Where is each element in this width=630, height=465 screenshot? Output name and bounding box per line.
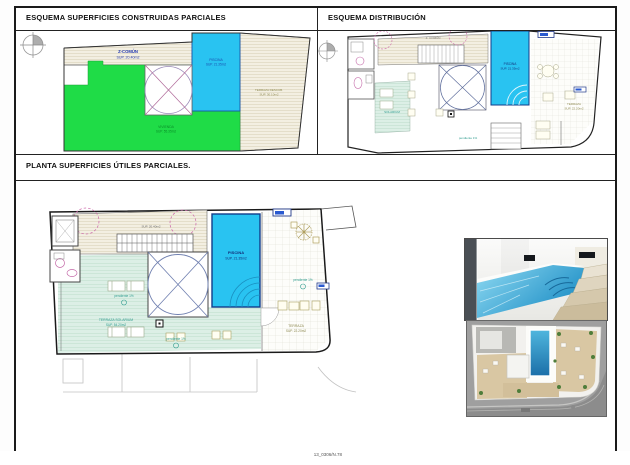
svg-text:Z-COMÚN: Z-COMÚN (118, 49, 138, 54)
svg-text:VIVIENDA: VIVIENDA (158, 125, 175, 129)
zone-piscina-pool (192, 33, 240, 111)
svg-text:Z. COMÚN: Z. COMÚN (426, 35, 441, 40)
dome-skylight (148, 252, 208, 317)
svg-text:SOLARIUM: SOLARIUM (384, 110, 400, 114)
svg-text:TERRAZA DESCUB.: TERRAZA DESCUB. (255, 88, 283, 92)
photo-aerial-render-image (467, 321, 606, 416)
panel-superficies-construidas: ESQUEMA SUPERFICIES CONSTRUIDAS PARCIALE… (16, 8, 318, 154)
plan-distribucion-drawing: Z. COMÚN PISCINA SUP. 21.35m2 SOLARIUM p… (318, 31, 615, 157)
solarium-deck (375, 81, 410, 133)
dome-skylight (145, 65, 192, 115)
photo-pool-render (464, 238, 608, 321)
svg-text:SUP. 22.20m2: SUP. 22.20m2 (286, 329, 307, 333)
terrace-table-set (278, 301, 320, 310)
stairs (117, 234, 193, 252)
black-marker (448, 111, 454, 117)
plan-construidas-drawing: Z-COMÚN SUP. 20.40m2 PISCINA SUP. 21.35m… (16, 31, 317, 157)
svg-text:SUP. 54.20m2: SUP. 54.20m2 (106, 323, 127, 327)
svg-text:PISCINA: PISCINA (209, 58, 223, 62)
svg-text:SUP. 55.35m2: SUP. 55.35m2 (156, 130, 177, 134)
svg-text:pendiente 1%: pendiente 1% (166, 337, 186, 341)
north-arrow-icon (20, 32, 46, 58)
panel-distribucion: ESQUEMA DISTRIBUCIÓN (318, 8, 615, 154)
svg-text:TERRAZA: TERRAZA (567, 102, 581, 106)
plan-appendix (321, 206, 356, 230)
svg-text:SUP. 20.40m2: SUP. 20.40m2 (141, 225, 160, 229)
plan-sheet-page: { "doc": { "construidas": { "title": "ES… (0, 0, 630, 465)
svg-text:pendiente 1%: pendiente 1% (459, 136, 478, 140)
stair-balcony (491, 123, 521, 149)
svg-text:SUP. 21.35m2: SUP. 21.35m2 (206, 63, 227, 67)
svg-text:pendiente 1%: pendiente 1% (114, 294, 134, 298)
photo-aerial-render (466, 320, 607, 417)
service-rooms (348, 39, 374, 99)
svg-text:pendiente 1%: pendiente 1% (293, 278, 313, 282)
label-vivienda: VIVIENDA SUP. 55.35m2 (156, 125, 177, 134)
bathroom (50, 250, 80, 282)
svg-text:SUP. 22.20m2: SUP. 22.20m2 (564, 107, 583, 111)
stairs (418, 45, 464, 63)
svg-text:PISCINA: PISCINA (228, 250, 244, 255)
dome-skylight (439, 65, 486, 110)
svg-text:SUP. 20.40m2: SUP. 20.40m2 (117, 56, 140, 60)
svg-text:PISCINA: PISCINA (504, 62, 518, 66)
panel-title-planta: PLANTA SUPERFICIES ÚTILES PARCIALES. (16, 155, 615, 181)
svg-text:TERRAZA SOLARIUM: TERRAZA SOLARIUM (99, 318, 133, 322)
black-marker (156, 320, 163, 327)
photo-pool-render-image (465, 239, 607, 320)
svg-text:SUP. 21.35m2: SUP. 21.35m2 (500, 67, 519, 71)
north-arrow-icon (318, 40, 338, 62)
panel-title-construidas: ESQUEMA SUPERFICIES CONSTRUIDAS PARCIALE… (16, 8, 317, 31)
svg-text:SUP. 30.10m2: SUP. 30.10m2 (259, 93, 278, 97)
sheet-reference-number: 13_0306/N.78 (306, 452, 342, 457)
lower-level-faint-lines (63, 354, 356, 392)
svg-text:TERRAZA: TERRAZA (288, 324, 305, 328)
panel-title-distribucion: ESQUEMA DISTRIBUCIÓN (318, 8, 615, 31)
elevator (52, 216, 78, 246)
svg-text:SUP. 21.35m2: SUP. 21.35m2 (225, 257, 247, 261)
